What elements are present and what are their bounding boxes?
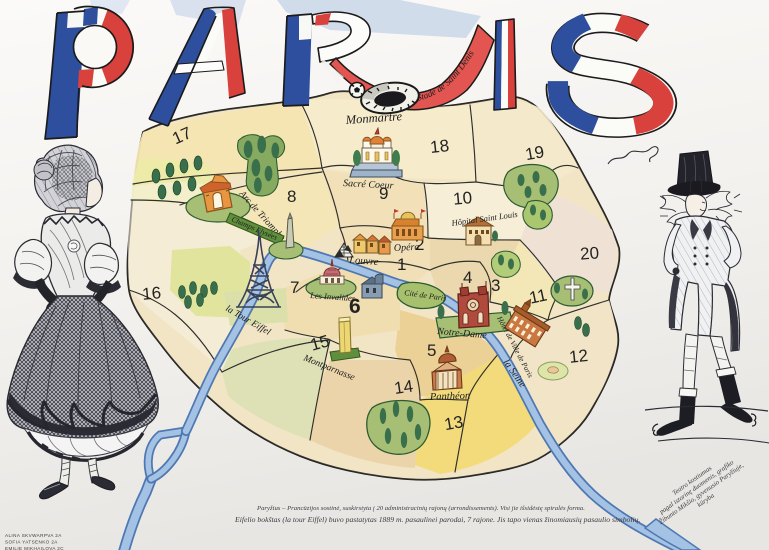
svg-text:Opéra: Opéra xyxy=(394,242,420,254)
svg-text:10: 10 xyxy=(452,188,473,209)
svg-text:Louvre: Louvre xyxy=(348,255,379,268)
svg-text:SOFIA YATSENKO 2A: SOFIA YATSENKO 2A xyxy=(5,540,58,545)
svg-text:Paryžius – Prancūzijos sostinė: Paryžius – Prancūzijos sostinė, suskirst… xyxy=(256,505,585,512)
svg-text:7: 7 xyxy=(290,278,299,297)
svg-text:Eifelio bokštas (la tour Eiffe: Eifelio bokštas (la tour Eiffel) buvo pa… xyxy=(234,515,641,524)
svg-text:1: 1 xyxy=(397,255,406,274)
svg-text:Panthéon: Panthéon xyxy=(429,391,471,403)
svg-text:5: 5 xyxy=(427,341,436,360)
svg-text:EMILIE MIKHAILOVA 2C: EMILIE MIKHAILOVA 2C xyxy=(5,546,64,550)
svg-text:14: 14 xyxy=(393,377,414,398)
svg-text:18: 18 xyxy=(429,136,450,157)
svg-text:19: 19 xyxy=(524,142,546,164)
svg-text:ALINA SKVWARPVA 2A: ALINA SKVWARPVA 2A xyxy=(5,533,62,538)
svg-text:13: 13 xyxy=(443,412,465,434)
svg-text:20: 20 xyxy=(579,243,599,263)
svg-text:8: 8 xyxy=(287,187,296,206)
svg-text:4: 4 xyxy=(463,268,472,287)
svg-text:3: 3 xyxy=(491,276,500,295)
svg-text:16: 16 xyxy=(141,283,162,304)
svg-text:12: 12 xyxy=(568,346,589,367)
